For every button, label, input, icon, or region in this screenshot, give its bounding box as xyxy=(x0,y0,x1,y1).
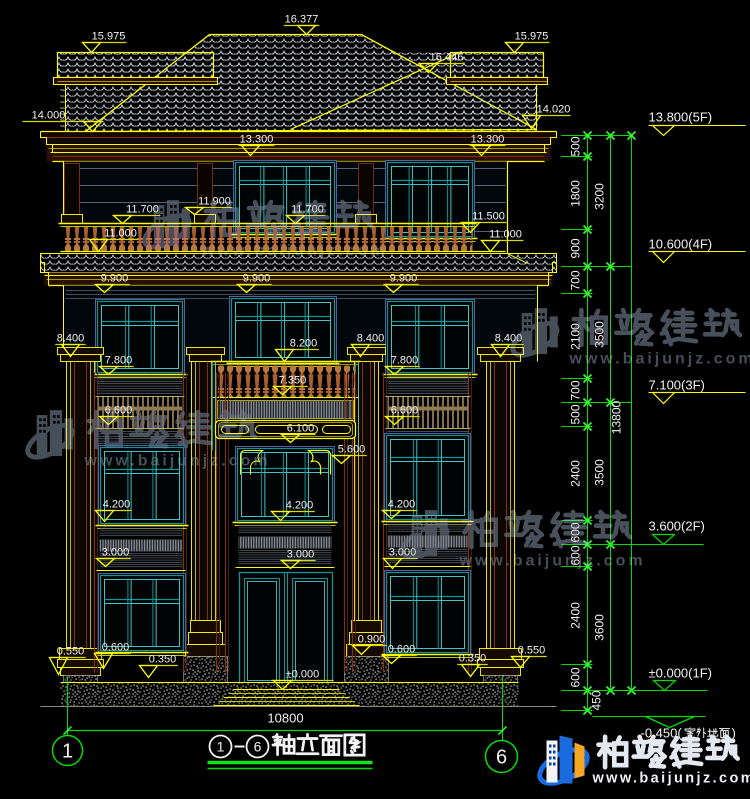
svg-text:3200: 3200 xyxy=(593,183,607,210)
svg-text:6.600: 6.600 xyxy=(105,405,133,417)
svg-text:0.350: 0.350 xyxy=(149,654,177,666)
svg-text:8.400: 8.400 xyxy=(357,333,385,345)
svg-text:www.baijunjz.com: www.baijunjz.com xyxy=(459,553,646,570)
svg-text:0.350: 0.350 xyxy=(459,653,487,665)
svg-text:16.377: 16.377 xyxy=(285,14,319,26)
svg-text:): ) xyxy=(732,726,736,741)
svg-text:3600: 3600 xyxy=(593,614,607,641)
svg-text:4.200: 4.200 xyxy=(388,499,416,511)
svg-text:1: 1 xyxy=(217,739,225,755)
svg-text:15.446: 15.446 xyxy=(430,52,464,64)
svg-text:7.800: 7.800 xyxy=(105,355,133,367)
svg-text:9.900: 9.900 xyxy=(101,273,129,285)
svg-text:0.550: 0.550 xyxy=(518,645,546,657)
svg-text:10.600(4F): 10.600(4F) xyxy=(649,237,713,252)
svg-text:±0.000: ±0.000 xyxy=(286,669,320,681)
svg-text:15.975: 15.975 xyxy=(92,31,126,43)
svg-text:1: 1 xyxy=(62,741,73,763)
svg-text:0.600: 0.600 xyxy=(102,642,130,654)
svg-text:11.000: 11.000 xyxy=(489,229,522,241)
svg-text:www.baijunjz.com: www.baijunjz.com xyxy=(569,351,750,368)
svg-text:2400: 2400 xyxy=(569,602,583,629)
svg-text:11.500: 11.500 xyxy=(472,211,505,223)
svg-text:500: 500 xyxy=(569,136,583,156)
svg-text:11.000: 11.000 xyxy=(104,228,137,240)
svg-text:13.300: 13.300 xyxy=(240,134,274,146)
svg-text:3.000: 3.000 xyxy=(102,547,130,559)
svg-text:±0.000(1F): ±0.000(1F) xyxy=(649,666,713,681)
svg-text:0.900: 0.900 xyxy=(358,634,386,646)
svg-text:4.200: 4.200 xyxy=(103,499,131,511)
svg-text:8.200: 8.200 xyxy=(290,338,318,350)
svg-text:900: 900 xyxy=(569,238,583,258)
svg-text:6: 6 xyxy=(254,739,262,755)
svg-text:500: 500 xyxy=(569,404,583,424)
svg-text:8.400: 8.400 xyxy=(57,333,85,345)
svg-text:700: 700 xyxy=(569,270,583,290)
svg-text:6.600: 6.600 xyxy=(391,405,419,417)
svg-text:700: 700 xyxy=(569,380,583,400)
svg-text:10800: 10800 xyxy=(267,711,303,726)
svg-text:6: 6 xyxy=(496,747,507,769)
svg-text:www.baijunjz.com: www.baijunjz.com xyxy=(592,771,750,787)
svg-text:6.100: 6.100 xyxy=(287,423,315,435)
svg-text:3500: 3500 xyxy=(593,459,607,486)
svg-text:15.975: 15.975 xyxy=(515,31,549,43)
svg-text:9.900: 9.900 xyxy=(390,273,418,285)
svg-text:3.000: 3.000 xyxy=(287,549,315,561)
svg-text:4.200: 4.200 xyxy=(286,500,314,512)
svg-text:600: 600 xyxy=(569,667,583,687)
svg-text:13800: 13800 xyxy=(610,400,624,434)
svg-text:14.020: 14.020 xyxy=(537,104,571,116)
svg-text:0.600: 0.600 xyxy=(388,644,416,656)
svg-text:450: 450 xyxy=(590,690,604,710)
svg-text:14.000: 14.000 xyxy=(32,110,66,122)
svg-text:13.800(5F): 13.800(5F) xyxy=(649,110,713,125)
svg-text:www.baijunjz.com: www.baijunjz.com xyxy=(84,453,271,470)
svg-text:13.300: 13.300 xyxy=(471,134,505,146)
svg-text:3.600(2F): 3.600(2F) xyxy=(649,519,705,534)
svg-text:5.600: 5.600 xyxy=(338,444,366,456)
svg-text:2400: 2400 xyxy=(569,460,583,487)
svg-text:1800: 1800 xyxy=(569,180,583,207)
svg-text:7.350: 7.350 xyxy=(279,375,307,387)
svg-text:0.550: 0.550 xyxy=(57,646,85,658)
svg-text:www.baijunjz.com: www.baijunjz.com xyxy=(201,243,388,260)
svg-text:9.900: 9.900 xyxy=(243,273,271,285)
svg-text:7.100(3F): 7.100(3F) xyxy=(649,378,705,393)
svg-text:7.800: 7.800 xyxy=(391,355,419,367)
